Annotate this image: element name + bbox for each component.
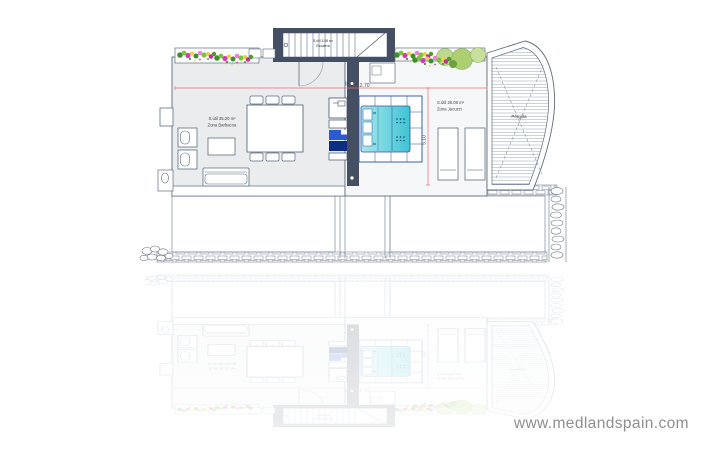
rubble-wall-right [549, 275, 566, 324]
sofa [203, 168, 249, 186]
stairs-name-label: Escalera [316, 44, 329, 48]
rubble-wall-left [140, 276, 173, 286]
dimension-width: 12.70 [357, 388, 370, 392]
door [299, 389, 323, 405]
pergola-label: Pérgola [511, 368, 527, 371]
jacuzzi-zone-label: Zona Jacuzzi [437, 373, 462, 376]
cupboard [370, 391, 395, 404]
dining-table [247, 341, 303, 383]
barbecue-floor [172, 318, 345, 408]
sun-lounger [465, 328, 485, 362]
paver-strip-bottom [157, 252, 547, 262]
jacuzzi-floor [345, 318, 487, 408]
planters [175, 400, 486, 414]
stairs-area-label: S.útil 3.08 m² [313, 417, 333, 420]
sun-lounger [465, 128, 485, 180]
jacuzzi-terrace: S.útil 26.08 m² Zona Jacuzzi [345, 318, 487, 408]
barbecue-unit [158, 170, 173, 191]
door-hinge [350, 176, 354, 180]
planter-left [175, 404, 259, 414]
flowers-left [177, 403, 253, 412]
stair-treads [289, 408, 355, 424]
barbecue-zone-label: Zona Barbacoa [208, 123, 237, 128]
dimension-height: 5.10 [422, 135, 428, 145]
floor-plan: S.útil 35.20 m² Zona Barbacoa S.útil 26.… [145, 25, 565, 270]
lower-level [140, 185, 566, 262]
sun-lounger [438, 328, 458, 362]
dimension-height: 5.10 [421, 351, 427, 358]
coffee-table [208, 345, 235, 356]
planter-right [395, 406, 485, 414]
jacuzzi-area-label: S.útil 26.08 m² [437, 377, 465, 380]
wall-notch [160, 108, 173, 126]
jacuzzi [359, 96, 422, 162]
jacuzzi-pool [361, 346, 410, 376]
flowers-right [394, 400, 485, 414]
armchair [178, 335, 197, 347]
sun-lounger [438, 128, 458, 180]
barbecue-unit [158, 321, 173, 335]
armchair [178, 150, 197, 169]
pergola-label: Pérgola [511, 114, 527, 119]
pillar-lines [340, 278, 390, 318]
jacuzzi-area-label: S.útil 26.08 m² [437, 100, 465, 105]
rubble-wall-left [140, 246, 173, 261]
cupboard [370, 63, 395, 83]
dining-table [247, 96, 303, 161]
barbecue-area-label: S.útil 35.20 m² [209, 116, 237, 121]
lower-level [140, 275, 566, 325]
navy-cabinet [329, 141, 347, 151]
jacuzzi-jets [396, 353, 405, 368]
dimension-lines: 12.70 5.10 [175, 325, 487, 392]
floor-plan-reflection: S.útil 35.20 m² Zona Barbacoa S.útil 26.… [145, 270, 565, 430]
pergola: Pérgola [487, 41, 555, 190]
rubble-wall-right [549, 187, 566, 262]
jacuzzi [359, 340, 422, 383]
stairs-area-label: S.útil 3.08 m² [313, 39, 334, 43]
stairs-name-label: Escalera [316, 414, 330, 417]
terrace-bottom-wall [172, 186, 345, 196]
outdoor-kitchen [329, 341, 347, 381]
barbecue-zone-label: Zona Barbacoa [208, 362, 237, 365]
paver-strip-right [345, 319, 557, 326]
barbecue-terrace: S.útil 35.20 m² Zona Barbacoa [158, 318, 345, 408]
barbecue-area-label: S.útil 35.20 m² [208, 366, 236, 369]
watermark-text: www.medlandspain.com [514, 415, 689, 433]
dimension-width: 12.70 [357, 83, 370, 89]
page: S.útil 35.20 m² Zona Barbacoa S.útil 26.… [0, 0, 705, 454]
jacuzzi-zone-label: Zona Jacuzzi [437, 107, 462, 112]
door-hinge [350, 328, 354, 331]
pillar-lines [340, 196, 390, 258]
pergola: Pérgola [487, 322, 555, 419]
armchair [178, 128, 197, 147]
wall-notch [160, 363, 173, 375]
armchair [178, 350, 197, 362]
coffee-table [208, 138, 235, 155]
sofa [203, 324, 249, 336]
stairwell: S.útil 3.08 m² Escalera [273, 389, 395, 427]
navy-cabinet [329, 347, 347, 354]
terrace-bottom-wall [172, 318, 345, 325]
wall-core [347, 62, 359, 186]
blue-cabinet [329, 354, 347, 361]
wall-core [347, 324, 359, 405]
paver-strip-bottom [157, 275, 547, 282]
